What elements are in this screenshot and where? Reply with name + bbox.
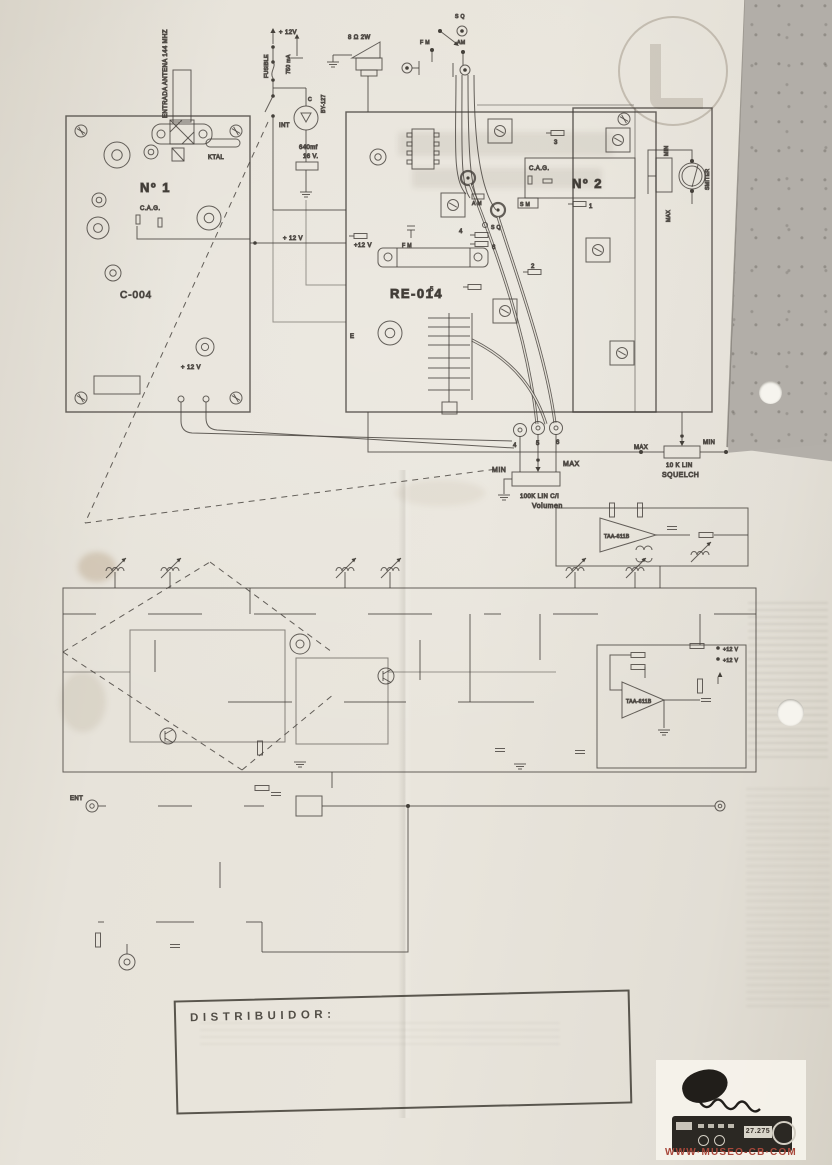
distribuidor-box: DISTRIBUIDOR: (174, 989, 633, 1114)
v12-top: + 12V (279, 30, 297, 36)
v12-b: +12 V (723, 658, 738, 664)
re-name: RE-014 (390, 286, 443, 301)
museo-watermark: 27.275 WWW·MUSEO-CB·COM (656, 1060, 806, 1160)
power-column: + 12V FUSIBLE 750 mA INT C BY-127 640mf … (264, 28, 346, 322)
vol-p6: 6 (556, 440, 560, 446)
ent-strip: ENT (70, 772, 725, 952)
diode-label: BY-127 (321, 94, 327, 113)
sq-value: 10 K LIN (666, 463, 693, 469)
ent-label: ENT (70, 796, 83, 802)
radio-buttons (698, 1124, 738, 1128)
squelch-pot: MAX MIN 10 K LIN SQUELCH (368, 412, 728, 479)
link-v12: + 12 V (283, 236, 303, 242)
sq-max: MAX (634, 445, 648, 451)
v12-a: +12 V (723, 647, 738, 653)
volume-pot: 4 5 6 MIN MAX 100K LIN C/I Volumen (492, 422, 580, 511)
board1-v12: + 12 V (181, 365, 201, 371)
antenna-label: ENTRADA ANTENA 144 MHZ (163, 29, 169, 118)
re-p5: 5 (430, 287, 434, 293)
radio-display: 27.275 (744, 1126, 772, 1138)
vol-p4: 4 (513, 443, 517, 449)
cap-voltage: 16 V. (303, 154, 318, 160)
distribuidor-label: DISTRIBUIDOR: (190, 1009, 336, 1025)
opamp1: TAA-611B (556, 503, 748, 588)
rotary-switch (428, 313, 472, 414)
board1-wires: + 12 V (181, 236, 514, 448)
speaker: 8 Ω 2W (327, 35, 382, 112)
radio-knob-small (698, 1135, 709, 1146)
dashed-projection (63, 122, 497, 770)
sq-min: MIN (703, 440, 715, 446)
radio-knob-large (772, 1121, 796, 1145)
re-v12: +12 V (354, 243, 372, 249)
meter-min: MIN (664, 146, 670, 156)
sq-name: SQUELCH (662, 472, 699, 479)
diagram-svg: ENTRADA ANTENA 144 MHZ Nº 1 C-004 C.A.G.… (0, 0, 832, 1165)
board1-cag: C.A.G. (140, 206, 160, 212)
fuse-rating: 750 mA (286, 54, 292, 74)
re-p6: 6 (492, 245, 496, 251)
board2: Nº 2 C.A.G. S M 1 MIN MAX SMITER (520, 108, 712, 412)
re-p2: 2 (531, 264, 535, 270)
ktal-label: KTAL (208, 155, 224, 161)
meter-max: MAX (666, 210, 672, 222)
board2-cag: C.A.G. (529, 166, 549, 172)
c-label: C (308, 97, 312, 103)
fusible-label: FUSIBLE (264, 54, 270, 78)
punch-hole (777, 699, 804, 726)
fm-label: F M (420, 40, 430, 46)
scanned-page: ENTRADA ANTENA 144 MHZ Nº 1 C-004 C.A.G.… (0, 0, 832, 1165)
vol-p5: 5 (536, 441, 540, 447)
sq-label: S Q (455, 14, 465, 20)
lower-strip (96, 862, 263, 970)
radio-label (676, 1122, 692, 1130)
smiter-label: SMITER (705, 169, 711, 190)
board2-p1: 1 (589, 204, 593, 210)
board2-sm: S M (520, 202, 530, 208)
punch-hole (759, 381, 782, 404)
speaker-label: 8 Ω 2W (348, 35, 371, 41)
vol-min: MIN (492, 467, 506, 474)
vol-value: 100K LIN C/I (520, 494, 559, 500)
re-p4: 4 (459, 229, 463, 235)
radio-knob-small (714, 1135, 725, 1146)
board2-name: Nº 2 (572, 176, 603, 191)
opamp1-label: TAA-611B (604, 534, 630, 540)
main-schematic: TAA-611B TAA-611B +12 V +12 V (63, 503, 756, 772)
re-p3: 3 (554, 140, 558, 146)
opamp2: TAA-611B +12 V +12 V (597, 644, 746, 769)
opamp2-label: TAA-611B (626, 699, 652, 705)
re-am: A M (472, 201, 482, 207)
int-label: INT (279, 123, 290, 129)
s-meter: MIN MAX SMITER (648, 146, 711, 222)
cable-runs (470, 184, 555, 424)
am-label: AM (457, 40, 465, 46)
board1-name: Nº 1 (140, 180, 171, 195)
board1-code: C-004 (120, 290, 152, 301)
cap-value: 640mf (299, 145, 318, 151)
re-sq: S Q (491, 225, 501, 231)
vol-name: Volumen (532, 503, 563, 510)
vol-max: MAX (563, 461, 580, 468)
re-fm: F M (402, 243, 412, 249)
museo-url: WWW·MUSEO-CB·COM (656, 1147, 806, 1158)
re-e: E (350, 334, 354, 340)
